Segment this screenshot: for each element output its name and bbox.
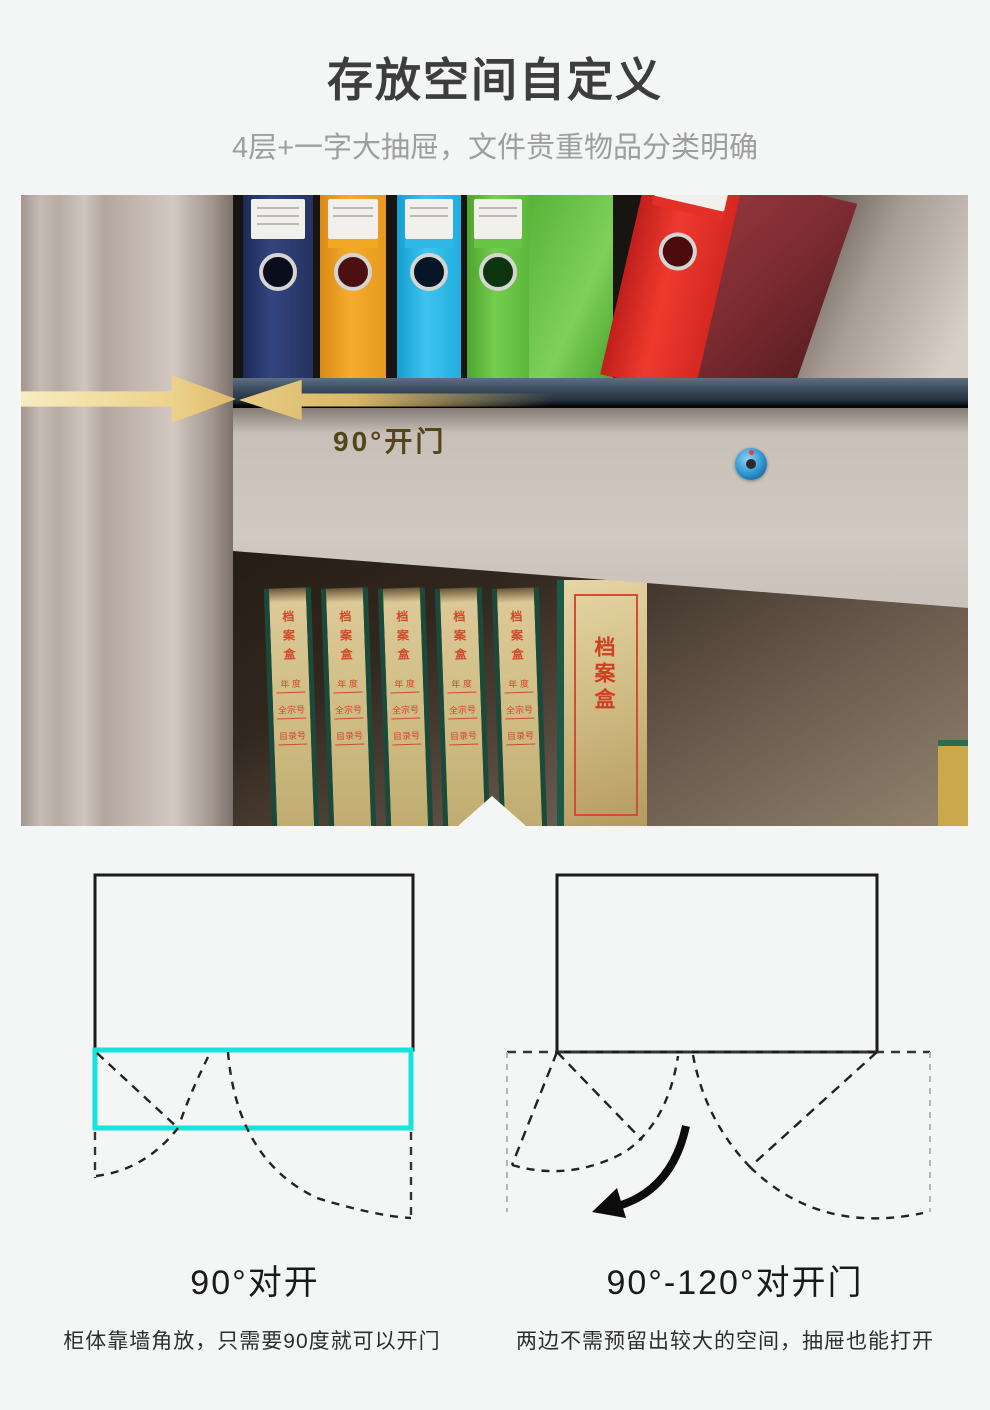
- diagram-90-open: [75, 860, 435, 1235]
- archive-field-index: 目录号: [277, 728, 307, 745]
- archive-field-year: 年 度: [276, 677, 306, 694]
- right-door-swing-arc: [228, 1052, 411, 1218]
- right-door-tip-arc: [693, 1055, 750, 1167]
- archive-box-title: 档案盒: [508, 610, 527, 668]
- binder-navy: [243, 195, 313, 381]
- binder-label: [405, 199, 454, 239]
- binder-label: [251, 199, 304, 239]
- archive-box-spine: 档案盒 年 度 全宗号 目录号: [264, 587, 319, 826]
- binder-label-strip: [328, 239, 378, 248]
- binder-finger-hole: [655, 229, 701, 275]
- right-diagram-heading: 90°-120°对开门: [545, 1255, 925, 1304]
- archive-box-title: 档案盒: [588, 636, 618, 714]
- door-open-annotation: 90°开门: [333, 420, 446, 460]
- archive-box-title: 档案盒: [280, 610, 299, 668]
- binder-label-strip: [405, 239, 454, 248]
- binder-green: [467, 195, 529, 381]
- lock-icon: [735, 448, 767, 480]
- binder-finger-hole: [410, 253, 448, 291]
- right-diagram-caption: 两边不需预留出较大的空间，抽屉也能打开: [480, 1325, 970, 1355]
- archive-box-spine: 档案盒 年 度 全宗号 目录号: [492, 587, 547, 826]
- binder-label: [328, 199, 378, 239]
- archive-field-index: 目录号: [448, 728, 478, 745]
- archive-field-file: 全宗号: [391, 702, 421, 719]
- archive-box-title: 档案盒: [451, 610, 470, 668]
- right-door-swing-arc: [750, 1167, 923, 1218]
- page-subtitle: 4层+一字大抽屉，文件贵重物品分类明确: [0, 124, 990, 166]
- archive-field-file: 全宗号: [334, 702, 364, 719]
- left-door-45deg: [97, 1053, 178, 1128]
- archive-box-right-edge: [938, 740, 968, 826]
- archive-field-year: 年 度: [447, 677, 477, 694]
- notch-pointer-icon: [458, 796, 526, 826]
- right-door-120deg: [750, 1052, 877, 1167]
- left-door-45deg: [557, 1052, 642, 1140]
- left-door-swing-arc: [179, 1057, 208, 1126]
- binder-cyan: [397, 195, 461, 381]
- left-diagram-heading: 90°对开: [105, 1255, 405, 1304]
- archive-field-year: 年 度: [333, 677, 363, 694]
- archive-field-year: 年 度: [390, 677, 420, 694]
- binder-finger-hole: [334, 253, 372, 291]
- cabinet-photo: 档案盒 年 度 全宗号 目录号 档案盒 年 度 全宗号 目录号 档案盒 年 度 …: [21, 195, 968, 826]
- archive-box-title: 档案盒: [337, 610, 356, 668]
- archive-box-spine: 档案盒 年 度 全宗号 目录号: [378, 587, 433, 826]
- cabinet-open-door: [21, 195, 233, 826]
- archive-box-spine: 档案盒 年 度 全宗号 目录号: [321, 587, 376, 826]
- archive-field-index: 目录号: [505, 728, 535, 745]
- lower-zone: 档案盒 年 度 全宗号 目录号 档案盒 年 度 全宗号 目录号 档案盒 年 度 …: [233, 408, 968, 826]
- binder-finger-hole: [479, 253, 517, 291]
- archive-box-face: 档案盒: [557, 580, 647, 826]
- archive-field-file: 全宗号: [448, 702, 478, 719]
- archive-field-file: 全宗号: [505, 702, 535, 719]
- product-detail-page: 存放空间自定义 4层+一字大抽屉，文件贵重物品分类明确: [0, 0, 990, 1410]
- archive-box-title: 档案盒: [394, 610, 413, 668]
- archive-field-file: 全宗号: [277, 702, 307, 719]
- cabinet-outline: [95, 875, 413, 1050]
- left-diagram-caption: 柜体靠墙角放，只需要90度就可以开门: [22, 1325, 482, 1355]
- binder-green-side: [529, 195, 613, 381]
- binder-finger-hole: [259, 253, 297, 291]
- cabinet-outline: [557, 875, 877, 1052]
- left-lower-swing-arc: [96, 1128, 178, 1176]
- archive-field-year: 年 度: [504, 677, 534, 694]
- left-door-swing-arc: [512, 1056, 678, 1171]
- page-title: 存放空间自定义: [0, 44, 990, 110]
- binder-label: [474, 199, 521, 239]
- archive-field-index: 目录号: [334, 728, 364, 745]
- archive-box-spine: 档案盒 年 度 全宗号 目录号: [435, 587, 490, 826]
- clearance-highlight: [95, 1050, 411, 1128]
- binder-orange: [320, 195, 386, 381]
- swing-direction-arrow: [618, 1126, 686, 1206]
- archive-field-index: 目录号: [391, 728, 421, 745]
- diagram-90-120-open: [490, 860, 950, 1235]
- left-door-120deg: [512, 1052, 557, 1165]
- swing-direction-arrowhead-icon: [592, 1188, 626, 1218]
- binder-label-strip: [474, 239, 521, 248]
